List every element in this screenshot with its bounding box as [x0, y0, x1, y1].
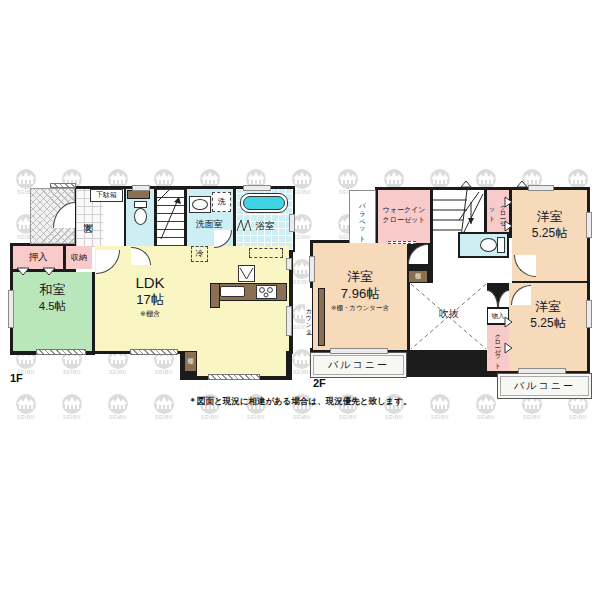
window [132, 185, 150, 191]
wic-label-2: クローゼット [378, 216, 430, 224]
shelf-2f: 棚 [408, 270, 428, 283]
shunou-label: 収納 [71, 253, 87, 262]
kitchen-counter-corner [210, 283, 220, 308]
ldk-size: 17帖 [95, 293, 205, 308]
door-mark [504, 342, 513, 354]
parapet-strip: パラペット [349, 190, 376, 247]
wic-label-1: ウォークイン [378, 206, 430, 214]
footnote: ＊図面と現況に相違がある場合は、現況優先と致します。 [130, 396, 470, 408]
stairs-2f-icon [433, 190, 484, 238]
western-left-size: 7.96帖 [313, 287, 407, 302]
senmenshitsu-label: 洗面室 [187, 219, 231, 229]
sliding-door-mark [42, 267, 56, 276]
room-ldk-extension [197, 351, 286, 376]
getabako-label: 下駄箱 [96, 191, 117, 199]
kitchen-sink-icon [220, 286, 245, 297]
balcony-left-label: バルコニー [328, 359, 389, 371]
ldk-note: ※棚含 [95, 310, 205, 318]
shelf-2f-label: 棚 [415, 273, 421, 280]
balcony-left: バルコニー [310, 352, 407, 378]
western-tr-name: 洋室 [512, 210, 587, 225]
sliding-door-mark [16, 267, 30, 276]
bathroom-label: 浴室 [245, 221, 285, 232]
balcony-right: バルコニー [497, 373, 592, 399]
shoe-cabinet: 下駄箱 [90, 189, 123, 202]
window [289, 214, 295, 232]
porch-step-marks [50, 183, 76, 188]
window-hatched [130, 349, 178, 355]
window [518, 368, 566, 374]
western-br-size: 5.25帖 [509, 317, 587, 331]
western-left-name: 洋室 [313, 270, 407, 285]
shelf-label: 棚 [188, 358, 194, 365]
window [528, 185, 554, 191]
toilet-shelf [127, 190, 150, 199]
closet-bottom-label: クローゼット [494, 329, 501, 366]
window [286, 306, 292, 336]
stairs-arrow-icon [157, 189, 184, 247]
toilet-tank-icon [497, 237, 505, 253]
toilet-bowl-icon [480, 238, 497, 252]
fukinuke-label: 吹抜 [410, 308, 487, 320]
floor2-label: 2F [313, 377, 326, 389]
genkan-label: 玄関 [83, 203, 93, 231]
bathtub-water [243, 196, 285, 210]
washitsu-name: 和室 [13, 283, 92, 298]
toilet-bowl-icon [134, 208, 147, 225]
window-hatched [208, 374, 260, 380]
window [243, 185, 271, 191]
parapet-label: パラペット [359, 198, 366, 240]
vent-mark [460, 180, 472, 188]
vent-mark [516, 180, 528, 188]
window-hatched [36, 349, 86, 355]
counter-label: カウンター [305, 288, 312, 348]
stove-burners-icon [256, 285, 277, 299]
toilet-tank-icon [134, 201, 147, 208]
western-left-note: ※棚・カウンター含 [313, 304, 407, 311]
washing-machine-box: 洗 [212, 192, 231, 212]
counter-dash-box [249, 248, 283, 258]
door-mark [504, 196, 513, 208]
wic-opening-dash [388, 241, 416, 244]
room-oshiire: 押入 [13, 246, 63, 269]
balcony-right-label: バルコニー [514, 380, 575, 392]
western-br-name: 洋室 [509, 300, 587, 315]
floor1-label: 1F [10, 372, 23, 384]
ldk-name: LDK [95, 274, 205, 291]
room-shunou: 収納 [66, 246, 92, 269]
washer-label: 洗 [218, 197, 226, 206]
vanity-basin-icon [192, 199, 208, 210]
floorplan-canvas: SEIBUSEIBUSEIBUSEIBUSEIBUSEIBUSEIBUSEIBU… [0, 0, 600, 600]
monoire-label: 物入 [492, 312, 505, 319]
shelf-1f: 棚 [184, 351, 197, 372]
oshiire-label: 押入 [29, 252, 48, 263]
range-hood-v-icon [238, 265, 255, 282]
refrigerator-label: 冷 [196, 249, 204, 258]
western-tr-size: 5.25帖 [512, 227, 587, 241]
washitsu-size: 4.5帖 [13, 300, 92, 313]
refrigerator-box: 冷 [191, 246, 208, 262]
vent [286, 258, 292, 270]
window [330, 348, 388, 354]
